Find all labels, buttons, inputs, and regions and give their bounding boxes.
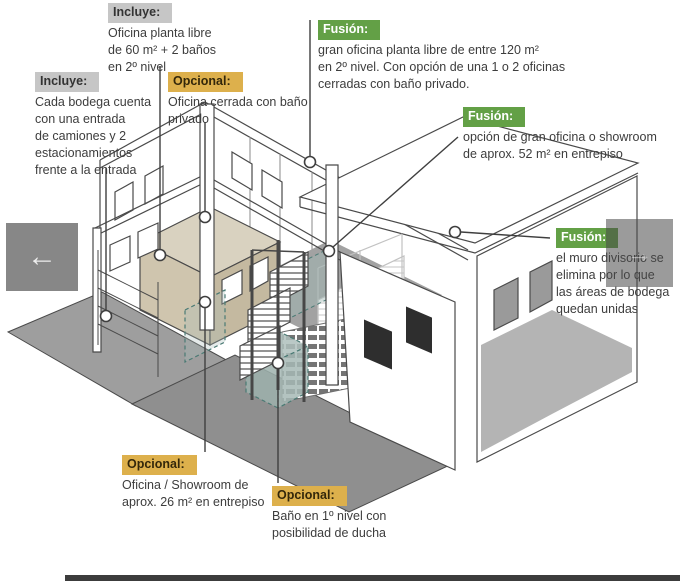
callout-text: Oficina / Showroom de aprox. 26 m² en en… [122, 477, 292, 511]
callout-text: opción de gran oficina o showroom de apr… [463, 129, 678, 163]
callout-fusion-gran-oficina: Fusión: gran oficina planta libre de ent… [318, 20, 588, 93]
callout-header: Opcional: [122, 455, 197, 475]
tall-column [326, 165, 338, 385]
callout-text: Oficina planta libre de 60 m² + 2 baños … [108, 25, 248, 76]
callout-text: Oficina cerrada con baño privado [168, 94, 333, 128]
callout-header: Incluye: [35, 72, 99, 92]
callout-text: Baño en 1º nivel con posibilidad de duch… [272, 508, 422, 542]
left-arrow-icon: ← [27, 242, 57, 272]
rear-window [232, 152, 252, 190]
bottom-scrubber-bar[interactable] [65, 575, 680, 581]
callout-fusion-showroom: Fusión: opción de gran oficina o showroo… [463, 107, 678, 163]
callout-incluye-top: Incluye: Oficina planta libre de 60 m² +… [108, 3, 248, 76]
callout-opcional-bano: Opcional: Baño en 1º nivel con posibilid… [272, 486, 422, 542]
callout-header: Fusión: [463, 107, 525, 127]
callout-opcional-oficina-cerrada: Opcional: Oficina cerrada con baño priva… [168, 72, 333, 128]
next-slide-button[interactable]: → [606, 219, 673, 287]
rear-window [262, 170, 282, 208]
callout-header: Opcional: [272, 486, 347, 506]
callout-text: gran oficina planta libre de entre 120 m… [318, 42, 588, 93]
right-arrow-icon: → [627, 240, 653, 266]
callout-header: Fusión: [318, 20, 380, 40]
previous-slide-button[interactable]: ← [6, 223, 78, 291]
callout-incluye-left: Incluye: Cada bodega cuenta con una entr… [35, 72, 170, 179]
callout-header: Opcional: [168, 72, 243, 92]
frame-window [110, 236, 130, 271]
callout-header: Incluye: [108, 3, 172, 23]
callout-opcional-showroom: Opcional: Oficina / Showroom de aprox. 2… [122, 455, 292, 511]
page: Incluye: Oficina planta libre de 60 m² +… [0, 0, 680, 581]
callout-text: Cada bodega cuenta con una entrada de ca… [35, 94, 170, 179]
corner-column [93, 228, 101, 352]
